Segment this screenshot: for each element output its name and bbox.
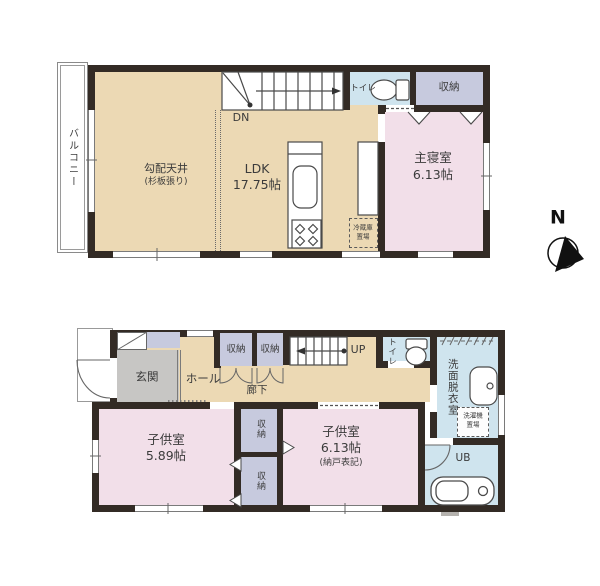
f2-wall-toilet-closet [410,72,416,105]
f1-wall-midcloset-left [234,409,241,505]
f2-window-bottom-2 [240,251,272,258]
f1-washroom-door-opening [430,385,437,412]
f2-sloped-ceiling-label: 勾配天井 [144,163,188,175]
f2-ldk-size: 17.75帖 [233,178,281,192]
f1-ub-door-opening [425,438,453,445]
f2-window-bottom-3 [342,251,380,258]
f2-wall-stairs-toilet [343,72,350,110]
f1-mid-closet-lower-label: 収納 [254,471,264,491]
f2-window-bottom-1 [113,251,200,258]
f2-master-bedroom-size: 6.13帖 [413,168,453,182]
f1-front-door-opening [110,358,117,398]
f1-wall-washroom-left [430,330,437,438]
f1-entrance-porch [77,328,113,402]
f2-balcony-label: バルコニー [67,128,78,188]
f2-closet-label: 収納 [439,82,460,94]
f2-stairs-down-label: DN [233,112,250,124]
f1-entrance-step-line [177,350,181,402]
f1-child-room1-label: 子供室 [147,433,185,447]
f2-window-right [483,143,490,210]
f1-child2-sliding-door-opening [318,402,379,409]
f1-mid-closet-upper-label: 収納 [254,419,264,439]
f2-sloped-ceiling-boundary [215,110,221,251]
f2-fridge-label-2: 置場 [357,233,370,240]
f1-child-room2-size: 6.13帖 [321,441,361,455]
f2-toilet-label: トイレ [350,84,376,93]
floor-plan-canvas: バルコニー 勾配天井 (杉板張り) LDK 17.75帖 DN トイレ 収納 主… [0,0,600,586]
f1-hall-label: ホール [186,373,221,386]
f1-window-left [92,440,99,473]
f1-wall-stairs-left [283,330,290,365]
f2-toilet-door-opening [386,105,414,112]
f1-bath-label: UB [456,453,471,465]
f1-hall-closet-left-label: 収納 [226,345,245,355]
f1-child-room2-note: (納戸表記) [319,459,362,469]
f1-window-bottom-2 [310,505,382,512]
f2-fridge-label-1: 冷蔵庫 [353,224,373,231]
f2-window-left [88,110,95,212]
f2-window-bottom-4 [418,251,453,258]
f1-toilet-label: トイレ [386,338,395,367]
f1-entrance-label: 玄関 [136,371,159,384]
f1-corridor-label: 廊下 [247,385,268,397]
f1-child-room2-label: 子供室 [322,425,360,439]
f2-master-bedroom-label: 主寝室 [414,151,452,165]
north-label: N [550,208,566,229]
f1-washer-label-1: 洗濯機 [463,412,483,419]
north-arrow-icon [548,236,584,272]
f1-stairs-up-label: UP [351,344,366,356]
f1-washer-label-2: 置場 [467,421,480,428]
f1-washroom-label: 洗面脱衣室 [446,358,458,416]
f1-exterior-step [441,512,459,516]
f2-ldk-label: LDK [245,162,270,176]
f1-child1-door-opening [210,402,234,409]
f1-window-right [498,395,505,435]
f1-shoe-cabinet [117,332,147,350]
f2-sloped-ceiling-note: (杉板張り) [144,178,187,188]
f1-child-room1-size: 5.89帖 [146,449,186,463]
f1-window-top [187,330,213,337]
f1-wall-child2-ub [418,402,425,512]
f2-ldk-floor [95,72,378,251]
f2-bedroom-door-opening [378,114,385,142]
f1-entrance-upper-cabinet [147,332,180,348]
f1-window-bottom-1 [135,505,203,512]
f1-hall-closet-right-label: 収納 [260,345,279,355]
